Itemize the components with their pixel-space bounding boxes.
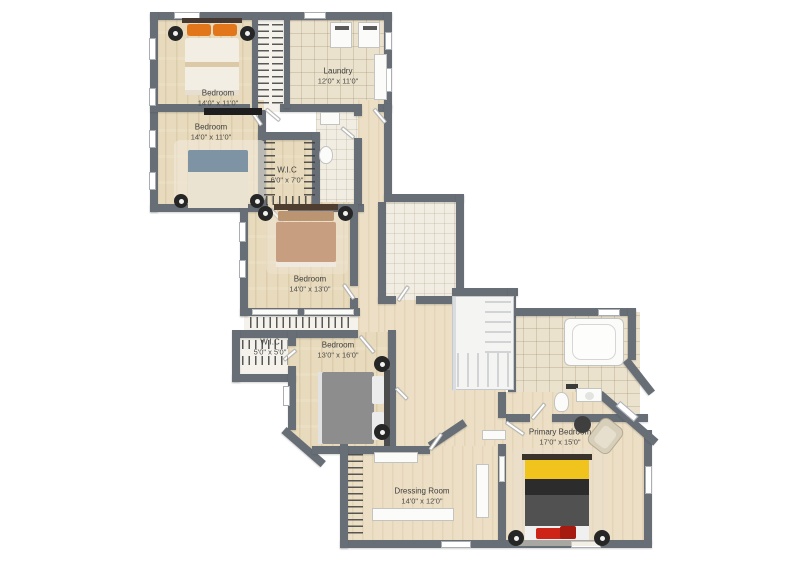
nightstand-icon (168, 26, 183, 41)
wall (280, 104, 362, 112)
wall (628, 308, 636, 360)
window-icon (283, 386, 290, 406)
lamp-icon (179, 199, 184, 204)
lamp-icon (263, 211, 268, 216)
wall (378, 202, 386, 302)
room-dims: 12'0" x 11'0" (318, 76, 359, 86)
room-name: Bedroom (202, 89, 234, 98)
room-name: Laundry (324, 67, 353, 76)
laundry-counter (374, 54, 387, 100)
lamp-icon (343, 211, 348, 216)
tv-console-icon (204, 108, 262, 115)
window-icon (645, 466, 652, 494)
closet-hangers-icon (250, 317, 298, 328)
headboard (274, 204, 338, 210)
duvet (188, 172, 248, 208)
bifold-door-icon (252, 309, 298, 315)
staircase-icon (452, 296, 514, 390)
wall (340, 444, 348, 548)
pillow (372, 376, 384, 404)
wall (384, 194, 464, 202)
room-name: Bedroom (195, 123, 227, 132)
window-icon (385, 32, 392, 50)
washer-icon (330, 22, 352, 48)
window-icon (304, 12, 326, 19)
nightstand-icon (258, 206, 273, 221)
speaker-cone (380, 430, 385, 435)
closet-hangers-icon (348, 454, 363, 538)
room-label-bedroom-2: Bedroom 14'0" x 11'0" (191, 123, 232, 142)
room-dims: 13'0" x 16'0" (317, 350, 358, 360)
wall (506, 414, 530, 422)
wall (354, 138, 362, 204)
bifold-door-icon (304, 309, 354, 315)
closet-hangers-icon (242, 356, 288, 365)
speaker-cone (380, 362, 385, 367)
sink-icon (320, 112, 340, 125)
room-label-bedroom-1: Bedroom 14'0" x 11'0" (198, 89, 239, 108)
window-icon (149, 38, 156, 60)
room-dims: 6'0" x 7'0" (271, 175, 304, 185)
toilet-icon (554, 392, 569, 412)
room-bath-2-floor (384, 198, 462, 304)
blanket (188, 150, 248, 172)
stair-steps (457, 353, 511, 387)
wall (498, 392, 506, 418)
window-icon (441, 541, 471, 548)
room-dims: 14'0" x 11'0" (198, 98, 239, 108)
nightstand-icon (240, 26, 255, 41)
window-icon (149, 172, 156, 190)
dresser-icon (372, 508, 454, 521)
clothes (560, 526, 576, 539)
lamp-icon (245, 31, 250, 36)
lamp-icon (173, 31, 178, 36)
room-name: W.I.C (260, 338, 280, 347)
room-label-wic-2: W.I.C 5'0" x 5'0" (254, 338, 287, 357)
room-label-bedroom-4: Bedroom 13'0" x 16'0" (317, 341, 358, 360)
pillow (525, 460, 589, 479)
bed-icon (274, 204, 338, 268)
pillow (187, 24, 211, 36)
room-dims: 14'0" x 11'0" (191, 132, 232, 142)
wall (232, 374, 296, 382)
room-dims: 14'0" x 12'0" (394, 496, 449, 506)
bed-icon (522, 454, 592, 542)
closet-hangers-icon (304, 142, 315, 198)
speaker-icon (374, 424, 390, 440)
room-name: W.I.C (277, 166, 297, 175)
blanket-fold (185, 62, 239, 67)
blanket (525, 479, 589, 495)
window-icon (239, 222, 246, 242)
closet-hangers-icon (258, 24, 269, 104)
pillow (278, 211, 334, 221)
room-dims: 17'0" x 15'0" (529, 437, 591, 447)
closet-hangers-icon (302, 317, 354, 328)
window-icon (149, 130, 156, 148)
wardrobe-icon (476, 464, 489, 518)
toilet-icon (319, 146, 333, 164)
lamp-icon (600, 536, 605, 541)
window-icon (149, 88, 156, 106)
nightstand-icon (508, 530, 524, 546)
nightstand-icon (174, 194, 188, 208)
floor-plan: Bedroom 14'0" x 11'0" Bedroom 14'0" x 11… (0, 0, 800, 566)
room-label-dressing-room: Dressing Room 14'0" x 12'0" (394, 487, 449, 506)
room-name: Bedroom (294, 275, 326, 284)
wall (288, 330, 296, 346)
bed-icon (188, 150, 248, 208)
duvet (276, 222, 336, 262)
wall (284, 16, 290, 108)
wall (378, 296, 396, 304)
duvet (322, 372, 374, 444)
dryer-icon (358, 22, 380, 48)
nightstand-icon (594, 530, 610, 546)
room-label-wic-1: W.I.C 6'0" x 7'0" (271, 166, 304, 185)
bench-icon (482, 430, 506, 440)
room-dims: 5'0" x 5'0" (254, 347, 287, 357)
room-label-primary-bedroom: Primary Bedroom 17'0" x 15'0" (529, 428, 591, 447)
speaker-icon (374, 356, 390, 372)
window-icon (239, 260, 246, 278)
armchair-cushion (593, 424, 618, 450)
window-icon (598, 309, 620, 316)
stair-rail (453, 297, 456, 391)
room-dims: 14'0" x 13'0" (289, 284, 330, 294)
room-name: Dressing Room (394, 487, 449, 496)
duvet (525, 495, 589, 526)
washer-controls (335, 26, 349, 30)
wall (354, 110, 362, 116)
sink-basin (585, 392, 594, 400)
bathtub-basin (572, 324, 616, 360)
room-label-laundry: Laundry 12'0" x 11'0" (318, 67, 359, 86)
nightstand-icon (338, 206, 353, 221)
closet-hangers-icon (272, 24, 283, 104)
dryer-controls (363, 26, 377, 30)
room-name: Primary Bedroom (529, 428, 591, 437)
wall (258, 132, 320, 140)
stair-steps (485, 301, 511, 353)
room-name: Bedroom (322, 341, 354, 350)
shelf-icon (374, 452, 418, 463)
lamp-icon (255, 199, 260, 204)
sink-icon (576, 388, 602, 402)
lamp-icon (514, 536, 519, 541)
footboard (276, 262, 336, 267)
headboard (182, 18, 242, 23)
bathtub-icon (564, 318, 624, 366)
room-label-bedroom-3: Bedroom 14'0" x 13'0" (289, 275, 330, 294)
pillow (213, 24, 237, 36)
pocket-door-icon (499, 456, 505, 482)
